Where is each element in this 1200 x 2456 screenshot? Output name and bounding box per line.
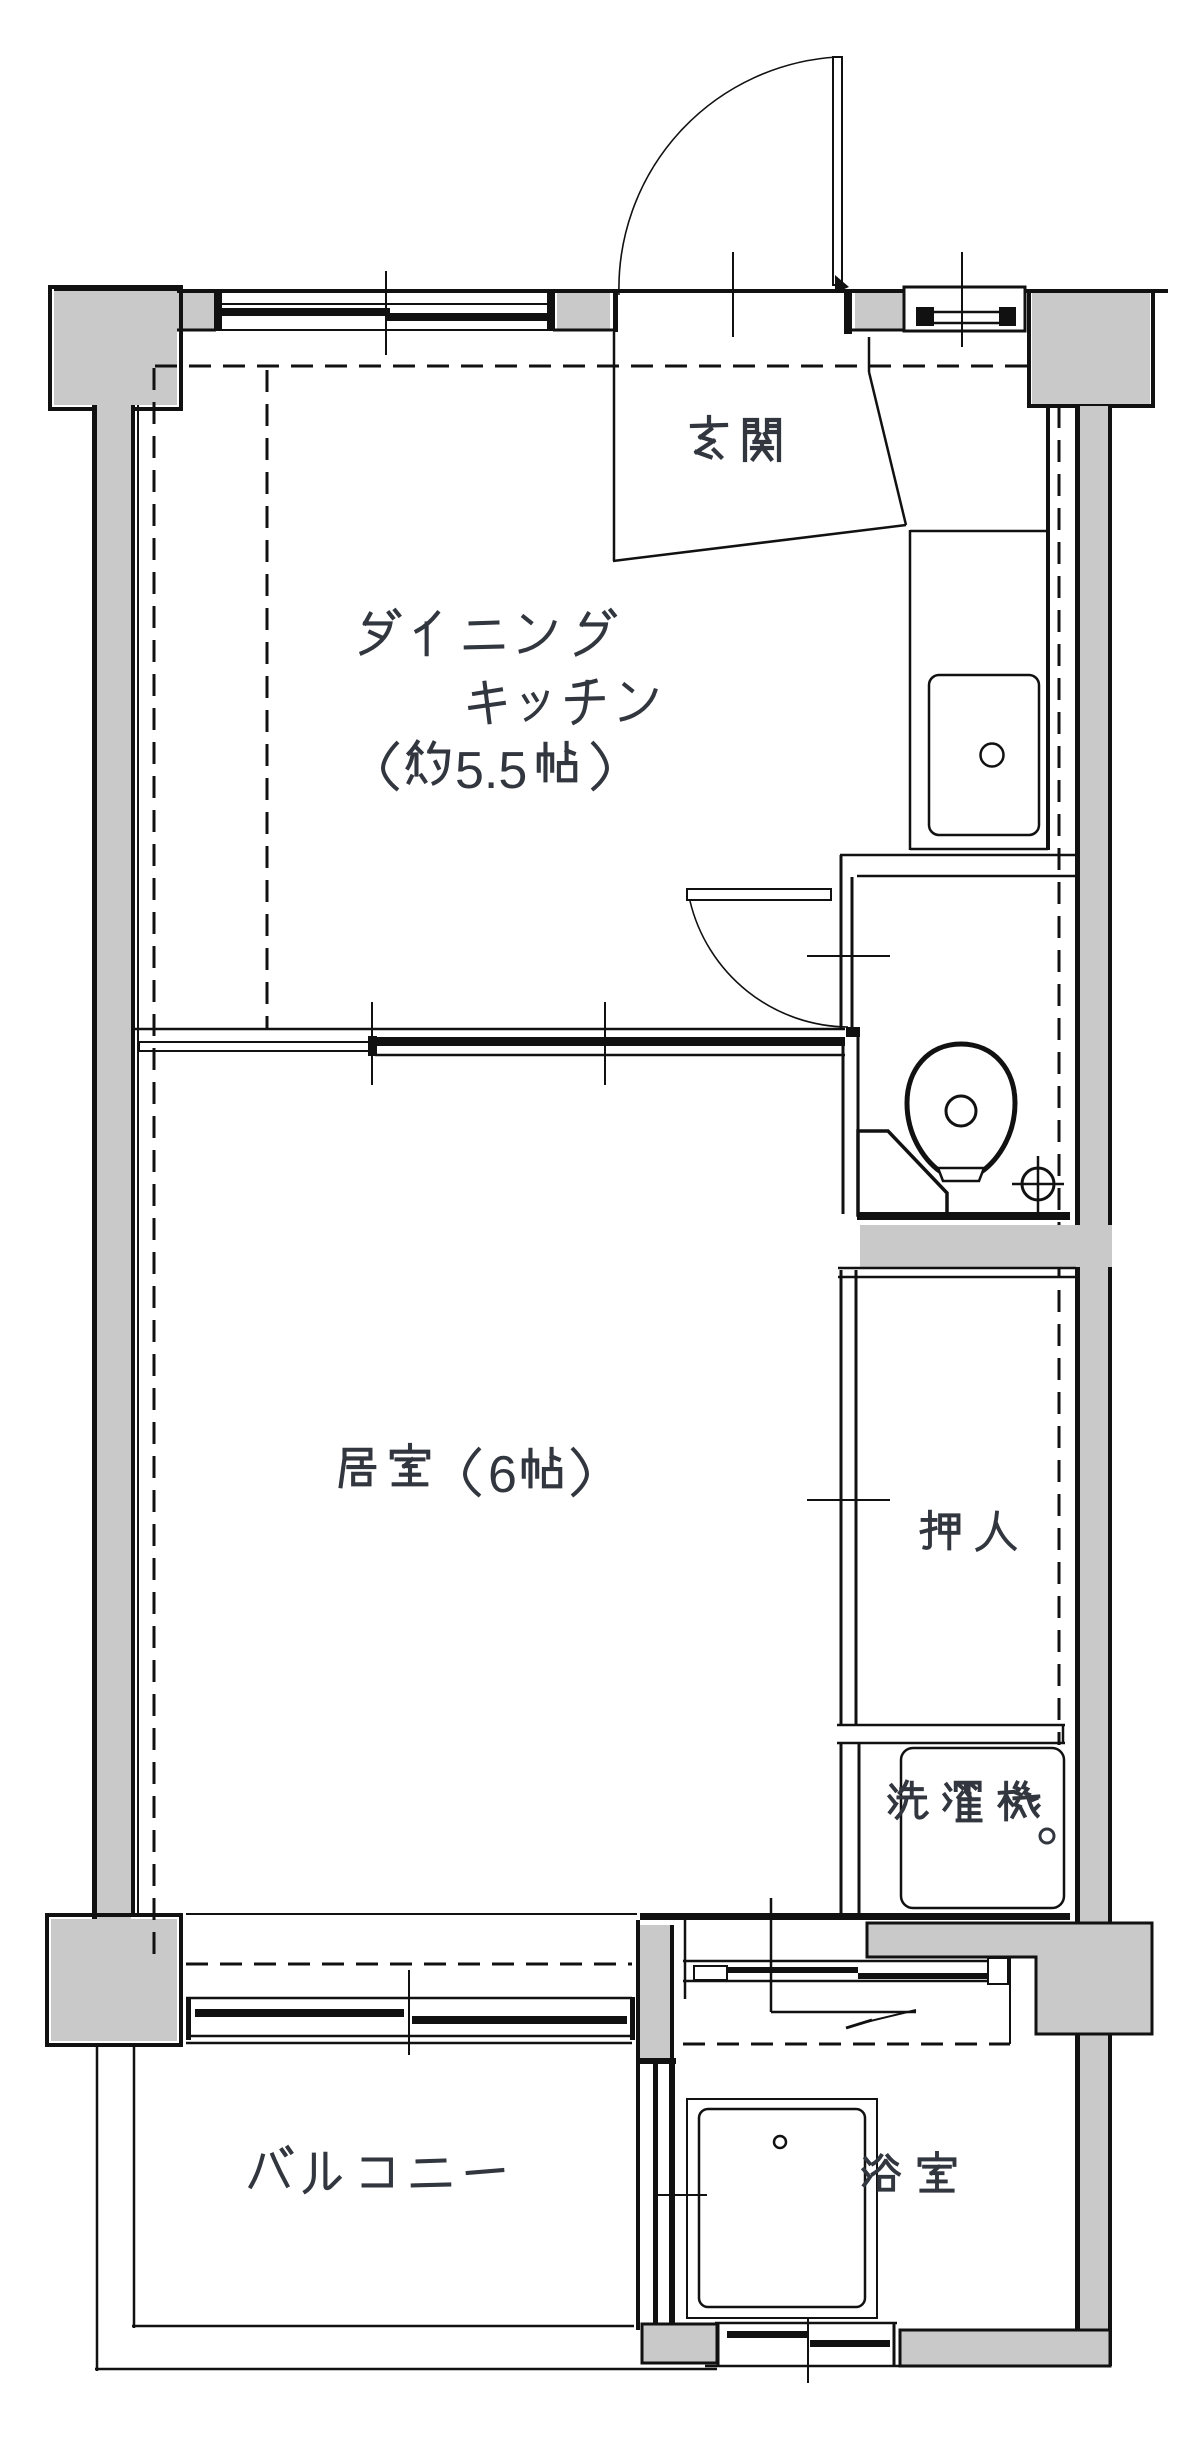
- svg-text:6: 6: [488, 1446, 517, 1504]
- svg-text:5.5: 5.5: [455, 742, 527, 800]
